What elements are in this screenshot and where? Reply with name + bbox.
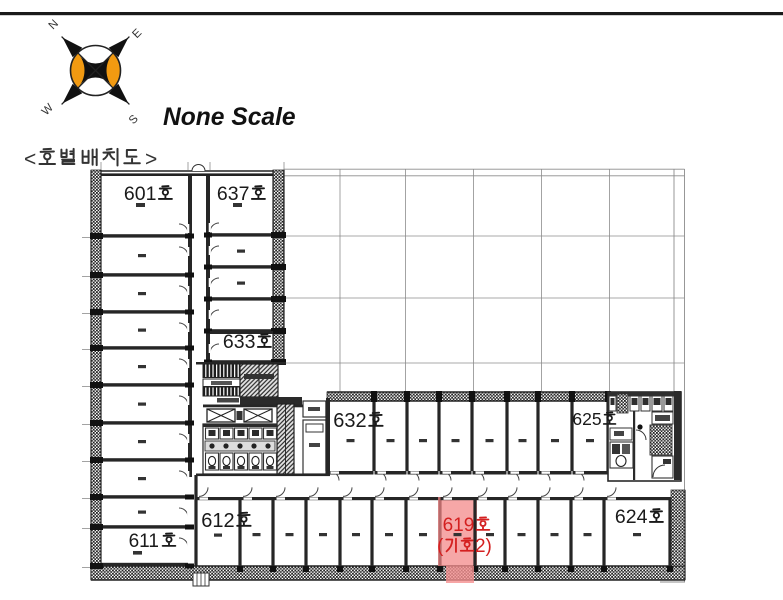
svg-text:): ) [486, 536, 492, 557]
svg-text:>: > [145, 148, 157, 171]
svg-text:2: 2 [475, 536, 486, 557]
svg-text:637: 637 [217, 183, 250, 205]
svg-text:632: 632 [333, 410, 366, 432]
svg-text:612: 612 [201, 510, 234, 532]
svg-text:633: 633 [223, 331, 256, 353]
svg-text:None Scale: None Scale [163, 104, 296, 131]
svg-text:625: 625 [572, 409, 601, 429]
svg-text:601: 601 [124, 183, 157, 205]
svg-text:619: 619 [443, 515, 475, 536]
svg-text:<: < [24, 148, 36, 171]
svg-text:(: ( [437, 536, 444, 557]
svg-text:624: 624 [615, 506, 648, 528]
svg-text:611: 611 [129, 531, 159, 552]
